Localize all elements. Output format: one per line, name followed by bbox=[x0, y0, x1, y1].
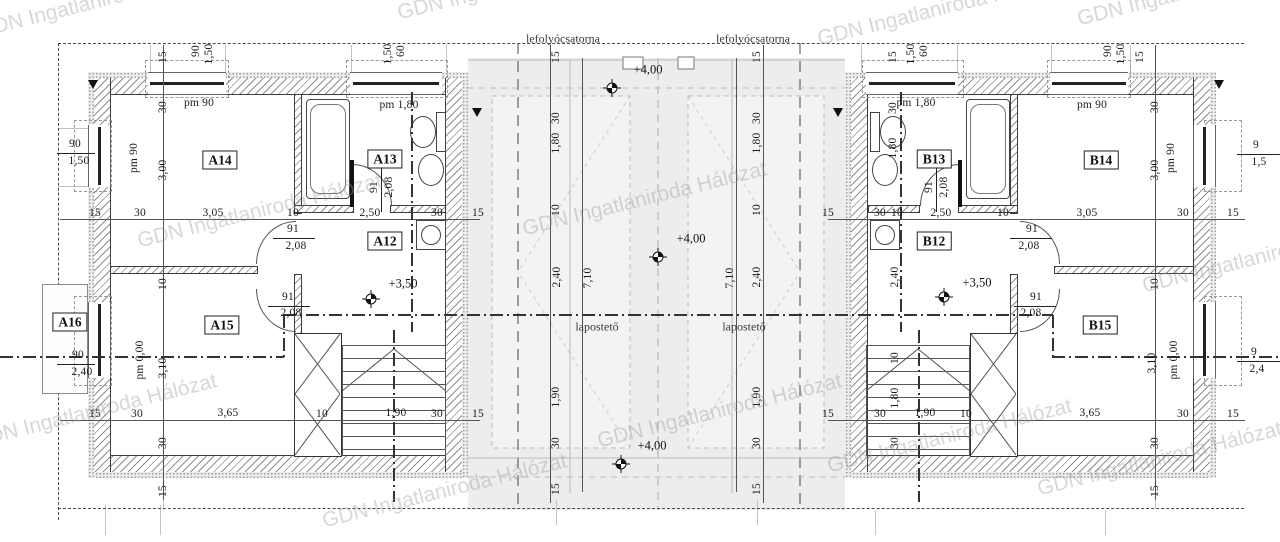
dimension-label: 15 bbox=[1134, 51, 1146, 63]
fraction-bar bbox=[936, 162, 937, 212]
section-line bbox=[283, 315, 285, 357]
dimension-label: 90 bbox=[69, 138, 81, 150]
watermark: GDN Ingatlaniroda Hálózat bbox=[395, 0, 644, 25]
dimension-label: 15 bbox=[822, 207, 834, 219]
dimension-label: 1,5 bbox=[1252, 156, 1267, 168]
dimension-label: 1,50 bbox=[203, 44, 215, 65]
dimension-label: 1,50 bbox=[382, 44, 394, 65]
room-label: A14 bbox=[202, 151, 237, 170]
dimension-label: 30 bbox=[874, 408, 886, 420]
dim-line bbox=[828, 219, 1245, 220]
dimension-label: 9 bbox=[1253, 139, 1259, 151]
window-a14-top bbox=[148, 72, 226, 95]
dimension-label: 10 bbox=[316, 408, 328, 420]
level-label: +4,00 bbox=[677, 232, 706, 247]
room-label: A12 bbox=[367, 232, 402, 251]
washing-machine-drum bbox=[875, 225, 895, 245]
dimension-label: 90 bbox=[1102, 45, 1114, 57]
level-label: +3,50 bbox=[963, 276, 992, 291]
extension-line bbox=[160, 505, 161, 535]
dimension-label: 30 bbox=[431, 207, 443, 219]
washing-machine-drum bbox=[421, 225, 441, 245]
dimension-label: 3,00 bbox=[1149, 160, 1161, 181]
extension-line bbox=[1105, 510, 1106, 535]
section-line bbox=[1052, 315, 1054, 357]
dimension-label: pm 0,00 bbox=[134, 340, 146, 379]
dimension-label: 1,50 bbox=[69, 155, 90, 167]
dimension-label: pm 1,80 bbox=[379, 99, 418, 111]
dimension-label: 10 bbox=[997, 207, 1009, 219]
dimension-label: 2,08 bbox=[938, 177, 950, 198]
dimension-label: 2,40 bbox=[72, 366, 93, 378]
dimension-label: pm 1,80 bbox=[896, 97, 935, 109]
dimension-label: 15 bbox=[472, 408, 484, 420]
window-b14-top bbox=[1050, 72, 1128, 95]
dimension-label: 91 bbox=[1026, 223, 1038, 235]
dimension-label: 91 bbox=[282, 291, 294, 303]
room-label: B15 bbox=[1083, 316, 1118, 335]
annotation-label: lefolyócsatorna bbox=[716, 32, 790, 47]
dimension-label: 1,50 bbox=[1115, 44, 1127, 65]
dimension-label: 15 bbox=[550, 51, 562, 63]
dimension-label: 30 bbox=[751, 112, 763, 124]
partition-a14-a15 bbox=[110, 266, 258, 274]
fraction-bar bbox=[57, 153, 95, 154]
door-b15-right bbox=[1193, 302, 1216, 378]
room-label: A13 bbox=[367, 150, 402, 169]
dim-line bbox=[736, 58, 737, 492]
annotation-label: lapostető bbox=[722, 320, 765, 335]
eaves-line-bottom bbox=[58, 508, 1244, 509]
dimension-label: 3,00 bbox=[157, 160, 169, 181]
dimension-label: 2,08 bbox=[281, 307, 302, 319]
fraction-bar bbox=[57, 364, 95, 365]
floor-plan-canvas: 15901,501,5060151,5060901,501515301,8010… bbox=[0, 0, 1280, 542]
dimension-label: 30 bbox=[1177, 408, 1189, 420]
dim-line bbox=[763, 45, 764, 503]
stair-shaft-a bbox=[294, 333, 342, 457]
dimension-label: 1,80 bbox=[550, 133, 562, 154]
dimension-label: 10 bbox=[157, 278, 169, 290]
benchmark-symbol bbox=[602, 78, 622, 98]
dimension-label: 15 bbox=[751, 51, 763, 63]
dimension-label: 15 bbox=[1227, 207, 1239, 219]
dimension-label: 15 bbox=[157, 51, 169, 63]
drain-arrow bbox=[88, 80, 98, 89]
dimension-label: 1,90 bbox=[550, 387, 562, 408]
room-label: B13 bbox=[917, 150, 952, 169]
insulation-band bbox=[88, 472, 468, 478]
dimension-label: 30 bbox=[550, 437, 562, 449]
insulation-band bbox=[845, 72, 851, 478]
level-label: +4,00 bbox=[634, 63, 663, 78]
annotation-label: lapostető bbox=[575, 320, 618, 335]
dimension-label: 3,10 bbox=[157, 358, 169, 379]
dimension-label: 30 bbox=[157, 101, 169, 113]
dimension-label: 91 bbox=[923, 181, 935, 193]
dimension-label: 2,08 bbox=[383, 177, 395, 198]
benchmark-symbol bbox=[361, 289, 381, 309]
annotation-label: lefolyócsatorna bbox=[526, 32, 600, 47]
dimension-label: 30 bbox=[751, 437, 763, 449]
dimension-label: 2,4 bbox=[1250, 363, 1265, 375]
dimension-label: 2,40 bbox=[889, 267, 901, 288]
dimension-label: pm 90 bbox=[1165, 143, 1177, 173]
dim-line bbox=[163, 45, 164, 500]
dimension-label: 2,40 bbox=[551, 267, 563, 288]
dimension-label: 15 bbox=[751, 483, 763, 495]
watermark: GDN Ingatlaniroda Hálózat bbox=[0, 0, 224, 43]
drain-arrow bbox=[833, 108, 843, 117]
dimension-label: 30 bbox=[550, 112, 562, 124]
dimension-label: 30 bbox=[1177, 207, 1189, 219]
dimension-label: pm 90 bbox=[1077, 99, 1107, 111]
dimension-label: 3,05 bbox=[1077, 207, 1098, 219]
dimension-label: 90 bbox=[72, 349, 84, 361]
dimension-label: 1,80 bbox=[751, 133, 763, 154]
extension-line bbox=[757, 500, 758, 525]
window-a14-left bbox=[88, 125, 111, 187]
extension-line bbox=[875, 510, 876, 535]
dimension-label: 3,65 bbox=[218, 407, 239, 419]
room-label: A16 bbox=[52, 313, 87, 332]
dim-line bbox=[60, 420, 480, 421]
insulation-band bbox=[845, 472, 1216, 478]
fraction-bar bbox=[273, 238, 315, 239]
dimension-label: 2,40 bbox=[751, 267, 763, 288]
dimension-label: 15 bbox=[472, 207, 484, 219]
drain-arrow bbox=[1214, 80, 1224, 89]
sink bbox=[872, 154, 898, 186]
dimension-label: 91 bbox=[287, 223, 299, 235]
extension-line bbox=[105, 505, 106, 535]
dimension-label: 2,50 bbox=[360, 207, 381, 219]
dimension-label: 30 bbox=[1149, 101, 1161, 113]
toilet-tank bbox=[436, 112, 446, 152]
section-line bbox=[283, 314, 1053, 316]
fraction-bar bbox=[1237, 154, 1280, 155]
dimension-label: pm 90 bbox=[128, 143, 140, 173]
toilet-bowl bbox=[410, 116, 436, 148]
dimension-label: 15 bbox=[822, 408, 834, 420]
dimension-label: 2,08 bbox=[286, 240, 307, 252]
dimension-label: 60 bbox=[918, 45, 930, 57]
dimension-label: 30 bbox=[431, 408, 443, 420]
benchmark-symbol bbox=[611, 454, 631, 474]
window-b14-right bbox=[1193, 125, 1216, 187]
benchmark-symbol bbox=[648, 247, 668, 267]
room-label: B14 bbox=[1084, 151, 1119, 170]
window-b13-top bbox=[866, 72, 958, 95]
extension-line bbox=[556, 500, 557, 525]
dimension-label: 10 bbox=[751, 204, 763, 216]
dimension-label: 30 bbox=[157, 437, 169, 449]
dimension-label: 15 bbox=[1227, 408, 1239, 420]
dimension-label: 9 bbox=[1251, 346, 1257, 358]
dimension-label: 15 bbox=[1149, 485, 1161, 497]
dimension-label: 7,10 bbox=[582, 268, 594, 289]
dimension-label: 30 bbox=[874, 207, 886, 219]
room-label: A15 bbox=[204, 316, 239, 335]
dimension-label: 30 bbox=[134, 207, 146, 219]
room-label: B12 bbox=[917, 232, 952, 251]
dimension-label: 15 bbox=[550, 483, 562, 495]
dimension-label: 1,80 bbox=[889, 388, 901, 409]
dimension-label: 1,90 bbox=[915, 407, 936, 419]
sink bbox=[418, 154, 444, 186]
section-line bbox=[1052, 356, 1280, 358]
watermark: GDN Ingatlaniroda Hálózat bbox=[1075, 0, 1280, 31]
dimension-label: 3,65 bbox=[1080, 407, 1101, 419]
fraction-bar bbox=[1010, 238, 1052, 239]
eaves-line-top bbox=[58, 43, 1244, 44]
window-a13-top bbox=[350, 72, 442, 95]
dimension-label: 1,50 bbox=[905, 44, 917, 65]
dimension-label: 1,90 bbox=[386, 407, 407, 419]
dimension-label: pm 90 bbox=[184, 97, 214, 109]
toilet-tank bbox=[870, 112, 880, 152]
dimension-label: 91 bbox=[1030, 291, 1042, 303]
dimension-label: 10 bbox=[889, 352, 901, 364]
partition-b14-b13 bbox=[1010, 94, 1018, 214]
section-line bbox=[411, 92, 413, 332]
eaves-line-left bbox=[58, 43, 59, 520]
dimension-label: pm 0,00 bbox=[1168, 340, 1180, 379]
roof-drain bbox=[678, 57, 694, 69]
dimension-label: 15 bbox=[89, 207, 101, 219]
benchmark-symbol bbox=[934, 287, 954, 307]
fraction-bar bbox=[1237, 361, 1280, 362]
dimension-label: 2,08 bbox=[1021, 307, 1042, 319]
dimension-label: 2,08 bbox=[1019, 240, 1040, 252]
bathtub-inner bbox=[970, 104, 1006, 194]
dimension-label: 15 bbox=[887, 51, 899, 63]
door-leaf bbox=[958, 160, 962, 207]
dimension-label: 7,10 bbox=[724, 268, 736, 289]
level-label: +3,50 bbox=[389, 277, 418, 292]
dimension-label: 3,10 bbox=[1146, 353, 1158, 374]
dimension-label: 2,50 bbox=[931, 207, 952, 219]
dimension-label: 1,80 bbox=[887, 138, 899, 159]
dimension-label: 90 bbox=[190, 45, 202, 57]
dimension-label: 60 bbox=[395, 45, 407, 57]
dimension-label: 10 bbox=[891, 207, 903, 219]
drain-arrow bbox=[472, 108, 482, 117]
dimension-label: 15 bbox=[157, 485, 169, 497]
